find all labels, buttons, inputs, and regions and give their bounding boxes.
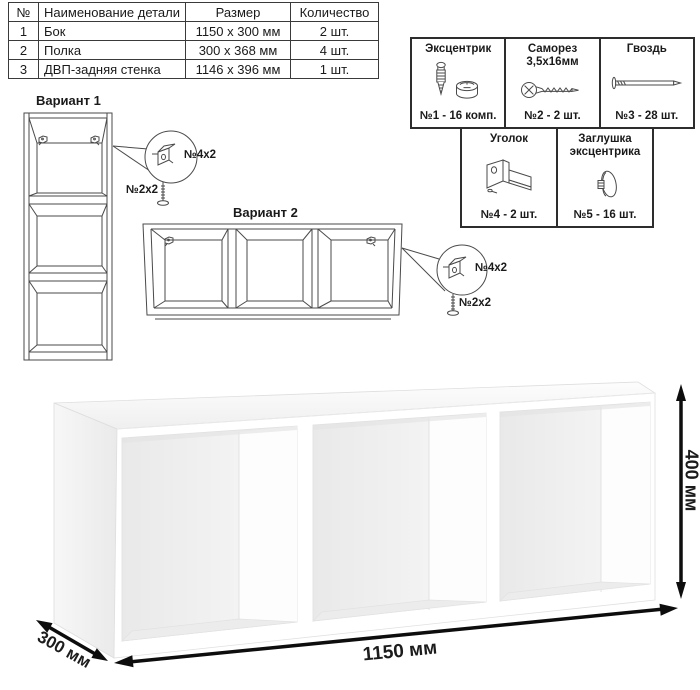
variant2-bracket-label: №4х2 [475,262,507,274]
cam-fitting-icon [427,56,489,110]
hardware-subtitle: эксцентрика [570,146,641,159]
hardware-count: №1 - 16 комп. [420,110,497,127]
corner-bracket-mini-icon [367,237,375,246]
part-num: 3 [9,60,39,79]
corner-bracket-mini-icon [165,237,173,246]
hardware-box-row1: Эксцентрик №1 - 16 комп. [410,37,695,129]
corner-bracket-icon [479,146,539,209]
hardware-title: Уголок [490,133,528,146]
hardware-item-eccentric: Эксцентрик №1 - 16 комп. [412,39,504,127]
table-row: 2 Полка 300 x 368 мм 4 шт. [9,41,379,60]
part-num: 1 [9,22,39,41]
variant2-screw-label: №2х2 [459,297,491,309]
table-row: 1 Бок 1150 x 300 мм 2 шт. [9,22,379,41]
parts-table: № Наименование детали Размер Количество … [8,2,379,79]
hardware-item-corner-bracket: Уголок №4 - 2 шт. [462,129,556,226]
hardware-count: №3 - 28 шт. [615,110,678,127]
hardware-title: Эксцентрик [425,43,491,56]
shelf-compartment [122,426,297,641]
hardware-title: Гвоздь [627,43,667,56]
part-size: 1150 x 300 мм [186,22,291,41]
hardware-item-cam-cover: Заглушкаэксцентрика №5 - 16 шт. [556,129,652,226]
col-header-size: Размер [186,3,291,22]
screw-mini-icon [158,182,169,205]
height-dimension-label: 400 мм [681,436,700,526]
variant1-title: Вариант 1 [36,93,101,108]
part-qty: 4 шт. [291,41,379,60]
part-qty: 2 шт. [291,22,379,41]
screw-mini-icon [448,294,459,315]
variant1-bracket-label: №4х2 [184,149,216,161]
table-row: 3 ДВП-задняя стенка 1146 x 396 мм 1 шт. [9,60,379,79]
hardware-title: Заглушка [570,133,641,146]
part-size: 300 x 368 мм [186,41,291,60]
hardware-subtitle: 3,5х16мм [526,56,578,69]
part-num: 2 [9,41,39,60]
variant2-drawing [135,218,505,330]
part-size: 1146 x 396 мм [186,60,291,79]
screw-icon [519,69,585,110]
assembly-instruction-sheet: № Наименование детали Размер Количество … [0,0,700,690]
hardware-count: №5 - 16 шт. [574,209,637,226]
corner-bracket-mini-icon [39,136,47,145]
shelf-compartment [313,413,486,621]
shelf-3d-drawing [0,373,700,690]
col-header-qty: Количество [291,3,379,22]
hardware-count: №2 - 2 шт. [524,110,580,127]
variant1-screw-label: №2х2 [126,184,158,196]
col-header-num: № [9,3,39,22]
hardware-item-nail: Гвоздь №3 - 28 шт. [599,39,693,127]
parts-table-header-row: № Наименование детали Размер Количество [9,3,379,22]
hardware-item-screw: Саморез3,5х16мм №2 - 2 шт. [504,39,598,127]
col-header-name: Наименование детали [39,3,186,22]
cam-cover-icon [585,159,625,209]
corner-bracket-mini-icon [91,136,99,145]
nail-icon [609,56,685,110]
hardware-title: Саморез [526,43,578,56]
shelf-left-face [54,403,117,658]
hardware-box-row2: Уголок №4 - 2 шт. Заглушкаэксцентрика [460,127,654,228]
part-name: Бок [39,22,186,41]
part-name: ДВП-задняя стенка [39,60,186,79]
shelf-compartment [500,402,650,601]
part-name: Полка [39,41,186,60]
part-qty: 1 шт. [291,60,379,79]
